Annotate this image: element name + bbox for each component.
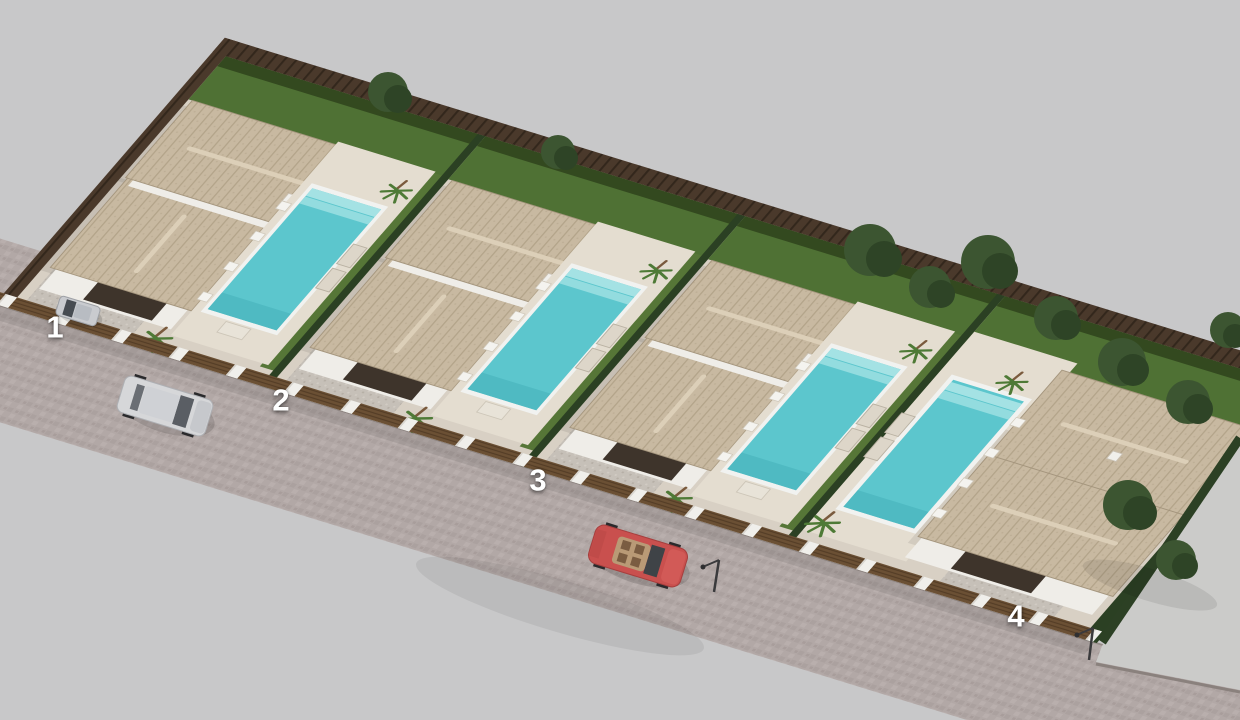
render-stage: 1 2 3 4 [0,0,1240,720]
plot-label-1: 1 [46,312,63,343]
plot-label-2: 2 [272,385,289,416]
plot-label-3: 3 [529,465,546,496]
plot-label-4: 4 [1007,601,1024,632]
scene-render [0,0,1240,720]
